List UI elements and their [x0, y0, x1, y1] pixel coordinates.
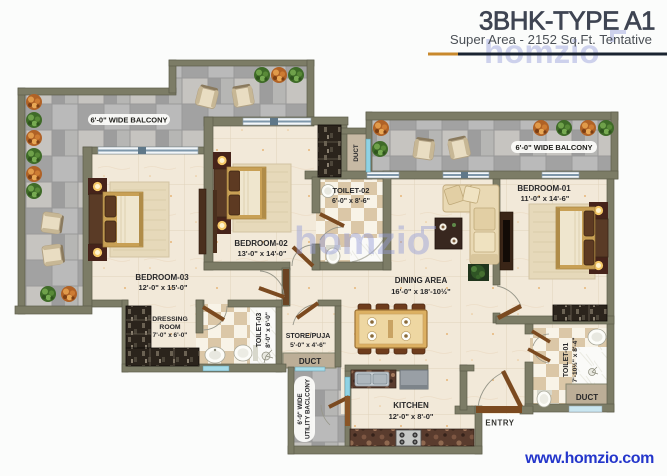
svg-text:BEDROOM-03: BEDROOM-03	[135, 273, 189, 282]
svg-text:BEDROOM-02: BEDROOM-02	[234, 239, 288, 248]
svg-text:6'-0" x 8'-6": 6'-0" x 8'-6"	[332, 198, 370, 205]
svg-text:12'-0" x 8'-0": 12'-0" x 8'-0"	[389, 412, 434, 421]
svg-text:DUCT: DUCT	[299, 357, 321, 366]
svg-text:DUCT: DUCT	[353, 144, 360, 161]
svg-text:KITCHEN: KITCHEN	[393, 401, 429, 410]
svg-text:DRESSING: DRESSING	[152, 316, 188, 323]
svg-text:UTILITY BACLCONY: UTILITY BACLCONY	[305, 378, 312, 439]
svg-text:7'-10½" x 8'-4": 7'-10½" x 8'-4"	[571, 338, 579, 383]
svg-text:16'-0" x 18'-10½": 16'-0" x 18'-10½"	[391, 287, 451, 296]
svg-text:Super Area - 2152 Sq.Ft. Tenta: Super Area - 2152 Sq.Ft. Tentative	[450, 32, 652, 47]
svg-text:11'-0" x 14'-6": 11'-0" x 14'-6"	[521, 194, 570, 203]
svg-text:8'-0" x 6'-0": 8'-0" x 6'-0"	[265, 312, 272, 348]
svg-text:DINING AREA: DINING AREA	[395, 276, 448, 285]
svg-text:ENTRY: ENTRY	[485, 419, 514, 428]
svg-text:ROOM: ROOM	[159, 324, 180, 331]
svg-text:www.homzio.com: www.homzio.com	[524, 450, 654, 467]
svg-text:TOILET-02: TOILET-02	[333, 186, 370, 195]
svg-text:TOILET-01: TOILET-01	[563, 343, 570, 378]
svg-text:3BHK-TYPE A1: 3BHK-TYPE A1	[479, 6, 655, 36]
svg-text:6'-0" WIDE BALCONY: 6'-0" WIDE BALCONY	[515, 143, 592, 152]
svg-text:TOILET-03: TOILET-03	[256, 313, 263, 348]
svg-text:12'-0" x 15'-0": 12'-0" x 15'-0"	[138, 283, 187, 292]
svg-text:homzio: homzio	[294, 220, 430, 263]
svg-text:STORE/PUJA: STORE/PUJA	[286, 333, 331, 340]
svg-text:6'-0" WIDE BALCONY: 6'-0" WIDE BALCONY	[90, 116, 167, 125]
svg-text:7'-0" x 6'-0": 7'-0" x 6'-0"	[153, 332, 188, 339]
svg-text:BEDROOM-01: BEDROOM-01	[517, 184, 571, 193]
svg-text:6'-0" WIDE: 6'-0" WIDE	[297, 393, 304, 424]
svg-text:DUCT: DUCT	[576, 393, 598, 402]
svg-text:5'-0" x 4'-6": 5'-0" x 4'-6"	[290, 342, 326, 349]
svg-text:13'-0" x 14'-0": 13'-0" x 14'-0"	[237, 249, 286, 258]
